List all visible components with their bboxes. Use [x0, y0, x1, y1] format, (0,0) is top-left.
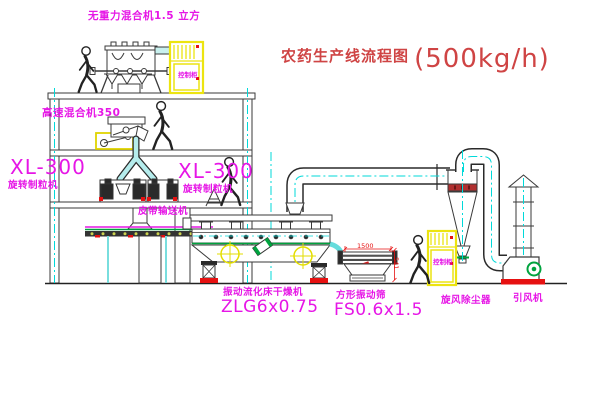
high-speed-mixer — [96, 117, 148, 149]
label-dryer-model: ZLG6x0.75 — [221, 299, 319, 316]
drawing-title-capacity: (500kg/h) — [414, 44, 550, 74]
person-ground — [410, 236, 429, 283]
gravity-free-mixer — [90, 42, 177, 93]
exhaust-stack — [509, 175, 538, 258]
label-fan: 引风机 — [513, 294, 543, 304]
drawing-title: 农药生产线流程图 (500kg/h) — [281, 44, 550, 74]
person-second-floor — [153, 102, 172, 149]
label-granulator-left-model: XL-300 — [10, 157, 86, 177]
induced-draft-fan — [501, 257, 545, 285]
granulator-left — [100, 179, 146, 202]
dimension-screen-length: 1500 — [357, 242, 374, 250]
label-granulator-left-name: 旋转制粒机 — [8, 181, 58, 191]
label-granulator-right-name: 旋转制粒机 — [183, 185, 233, 195]
label-cabinet-upper: 控制柜 — [178, 72, 198, 79]
label-high-speed-mixer: 高速混合机350 — [42, 108, 120, 119]
label-cabinet-lower: 控制柜 — [433, 259, 453, 266]
duct-dryer-to-cyclone — [286, 164, 450, 214]
control-cabinet-upper — [170, 42, 203, 93]
label-granulator-right-model: XL-300 — [178, 161, 254, 181]
cad-drawing-canvas: 农药生产线流程图 (500kg/h) 无重力混合机1.5 立方 高速混合机350… — [0, 0, 600, 403]
label-gravity-mixer: 无重力混合机1.5 立方 — [88, 11, 200, 22]
label-belt-conveyor: 皮带输送机 — [138, 207, 188, 217]
drawing-title-text: 农药生产线流程图 — [281, 47, 409, 65]
dimension-screen-height: 541 — [392, 257, 400, 269]
label-screen-model: FS0.6x1.5 — [334, 302, 423, 319]
label-cyclone: 旋风除尘器 — [441, 296, 491, 306]
dryer-spring-supports — [200, 261, 328, 283]
